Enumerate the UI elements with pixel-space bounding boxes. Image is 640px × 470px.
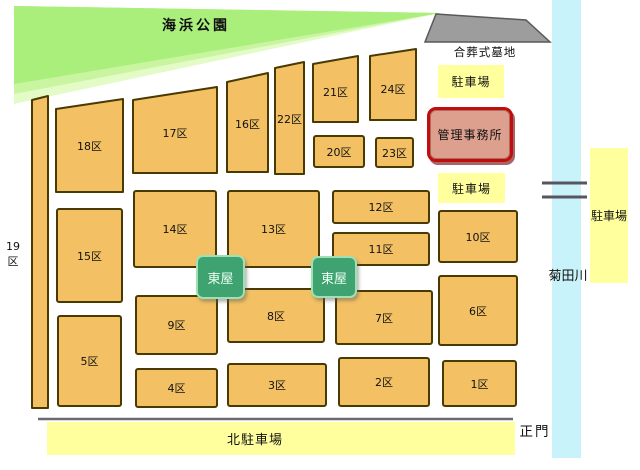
- section-3-label: 3区: [268, 377, 286, 393]
- gazebo-east: 東屋: [311, 256, 357, 298]
- main-gate-label: 正門: [515, 421, 555, 438]
- section-2-label: 2区: [375, 374, 393, 390]
- management-office: 管理事務所: [427, 107, 513, 162]
- river-band: [552, 0, 581, 458]
- section-15-label: 15区: [77, 248, 102, 264]
- section-5-label: 5区: [81, 353, 99, 369]
- section-1-label: 1区: [471, 376, 489, 392]
- section-2: 2区: [338, 357, 430, 407]
- section-24: [370, 49, 416, 120]
- section-12: 12区: [332, 190, 430, 224]
- parking-east-label: 駐車場: [591, 207, 627, 224]
- section-7: 7区: [335, 290, 433, 345]
- section-4-label: 4区: [168, 380, 186, 396]
- section-19: [32, 96, 48, 408]
- section-18: [56, 99, 123, 192]
- cemetery-park-map: 18区 17区 16区 22区 21区 24区 19区 20区 23区 12区 …: [0, 0, 640, 470]
- parking-middle-label: 駐車場: [452, 180, 491, 197]
- section-23-label: 23区: [382, 145, 407, 161]
- section-13-label: 13区: [261, 221, 286, 237]
- parking-top: 駐車場: [438, 65, 504, 98]
- section-9-label: 9区: [168, 317, 186, 333]
- section-17: [133, 87, 217, 173]
- gazebo-west-label: 東屋: [207, 268, 233, 287]
- section-6: 6区: [438, 275, 518, 346]
- park-label: 海浜公園: [130, 15, 262, 35]
- parking-middle: 駐車場: [438, 173, 505, 203]
- section-20: 20区: [313, 135, 365, 168]
- section-9: 9区: [135, 295, 218, 355]
- section-11-label: 11区: [369, 241, 394, 257]
- section-23: 23区: [375, 137, 414, 168]
- river-label: 菊田川: [538, 266, 598, 282]
- management-office-label: 管理事務所: [437, 126, 502, 143]
- parking-east: 駐車場: [590, 148, 628, 283]
- section-10: 10区: [438, 210, 518, 263]
- section-10-label: 10区: [466, 229, 491, 245]
- section-6-label: 6区: [469, 303, 487, 319]
- section-20-label: 20区: [327, 144, 352, 160]
- communal-grave-shape: [425, 14, 550, 42]
- parking-north-label: 北駐車場: [227, 429, 283, 448]
- gazebo-east-label: 東屋: [321, 268, 347, 287]
- section-1: 1区: [442, 360, 517, 407]
- section-3: 3区: [227, 363, 327, 407]
- section-12-label: 12区: [369, 199, 394, 215]
- communal-grave-label: 合葬式墓地: [445, 44, 525, 59]
- section-15: 15区: [56, 208, 123, 303]
- section-14-label: 14区: [163, 221, 188, 237]
- section-7-label: 7区: [375, 310, 393, 326]
- parking-north: 北駐車場: [47, 422, 515, 455]
- section-19-label: 19区: [4, 240, 22, 270]
- section-16: [227, 73, 268, 172]
- section-21: [313, 56, 358, 122]
- parking-top-label: 駐車場: [451, 73, 490, 90]
- section-8-label: 8区: [267, 308, 285, 324]
- section-4: 4区: [135, 368, 218, 408]
- section-5: 5区: [57, 315, 122, 407]
- section-22: [275, 62, 304, 174]
- gazebo-west: 東屋: [196, 255, 245, 299]
